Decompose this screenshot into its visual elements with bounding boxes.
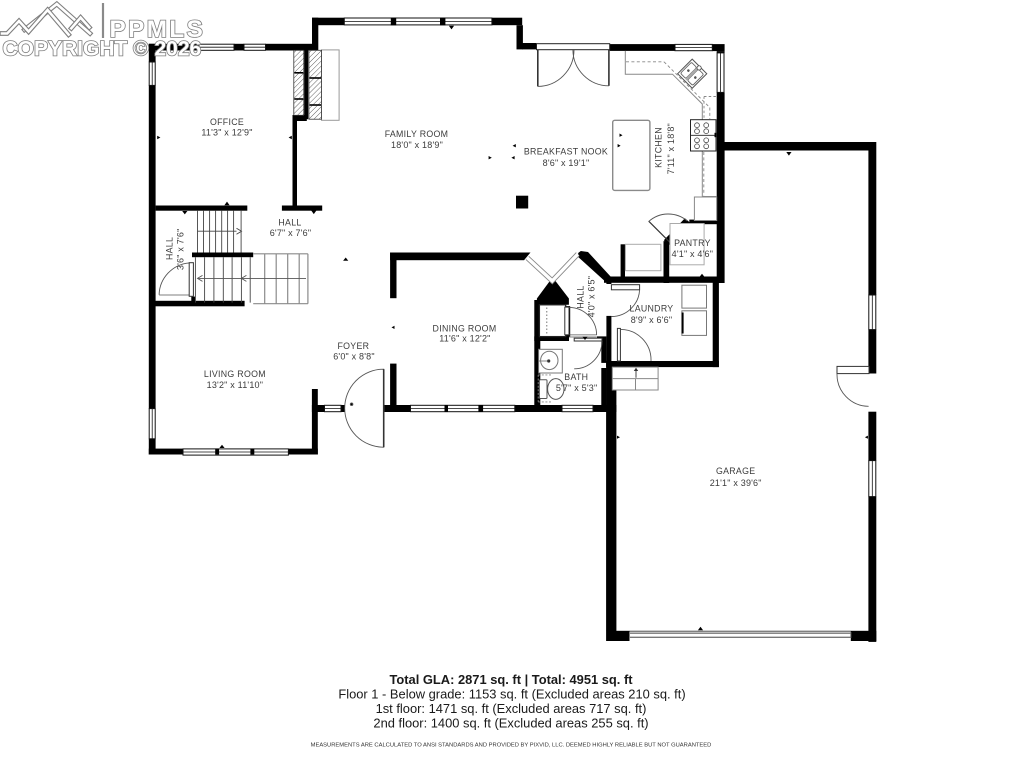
svg-text:8'9" x 6'6": 8'9" x 6'6"	[631, 315, 673, 325]
svg-text:Floor 1 - Below grade: 1153 sq: Floor 1 - Below grade: 1153 sq. ft (Excl…	[338, 687, 685, 702]
svg-text:HALL: HALL	[165, 237, 175, 260]
svg-text:4'1" x 4'6": 4'1" x 4'6"	[672, 249, 714, 259]
svg-text:1st floor: 1471 sq. ft (Exclud: 1st floor: 1471 sq. ft (Excluded areas 7…	[376, 701, 647, 716]
svg-text:OFFICE: OFFICE	[210, 117, 244, 127]
svg-text:6'7" x 7'6": 6'7" x 7'6"	[270, 228, 312, 238]
svg-text:HALL: HALL	[278, 218, 301, 228]
svg-text:11'6" x 12'2": 11'6" x 12'2"	[439, 334, 490, 344]
svg-text:GARAGE: GARAGE	[716, 466, 755, 476]
svg-text:PANTRY: PANTRY	[674, 238, 711, 248]
svg-text:KITCHEN: KITCHEN	[654, 127, 664, 168]
svg-text:DINING ROOM: DINING ROOM	[433, 323, 497, 333]
svg-text:4'0" x 6'5": 4'0" x 6'5"	[586, 276, 596, 318]
svg-text:HALL: HALL	[575, 285, 585, 308]
svg-text:FOYER: FOYER	[337, 341, 369, 351]
svg-text:LAUNDRY: LAUNDRY	[630, 303, 674, 313]
svg-text:6'0" x 8'8": 6'0" x 8'8"	[333, 352, 375, 362]
svg-text:2nd floor: 1400 sq. ft (Exclud: 2nd floor: 1400 sq. ft (Excluded areas 2…	[373, 716, 648, 731]
svg-text:COPYRIGHT © 2026: COPYRIGHT © 2026	[3, 38, 202, 61]
svg-text:LIVING ROOM: LIVING ROOM	[204, 369, 266, 379]
svg-text:5'7" x 5'3": 5'7" x 5'3"	[556, 383, 598, 393]
svg-text:FAMILY ROOM: FAMILY ROOM	[385, 129, 449, 139]
svg-text:13'2" x 11'10": 13'2" x 11'10"	[207, 380, 264, 390]
svg-text:Total GLA: 2871 sq. ft | Total: Total GLA: 2871 sq. ft | Total: 4951 sq.…	[389, 672, 633, 687]
svg-text:3'6" x 7'6": 3'6" x 7'6"	[176, 229, 186, 271]
svg-text:8'6" x 19'1": 8'6" x 19'1"	[543, 158, 590, 168]
svg-text:BREAKFAST NOOK: BREAKFAST NOOK	[524, 147, 608, 157]
svg-text:11'3" x 12'9": 11'3" x 12'9"	[201, 128, 252, 138]
svg-text:7'11" x 18'8": 7'11" x 18'8"	[666, 123, 676, 174]
svg-text:18'0" x 18'9": 18'0" x 18'9"	[391, 140, 443, 150]
svg-text:BATH: BATH	[564, 372, 588, 382]
svg-text:21'1" x 39'6": 21'1" x 39'6"	[710, 478, 762, 488]
svg-text:MEASUREMENTS ARE CALCULATED TO: MEASUREMENTS ARE CALCULATED TO ANSI STAN…	[311, 743, 712, 749]
